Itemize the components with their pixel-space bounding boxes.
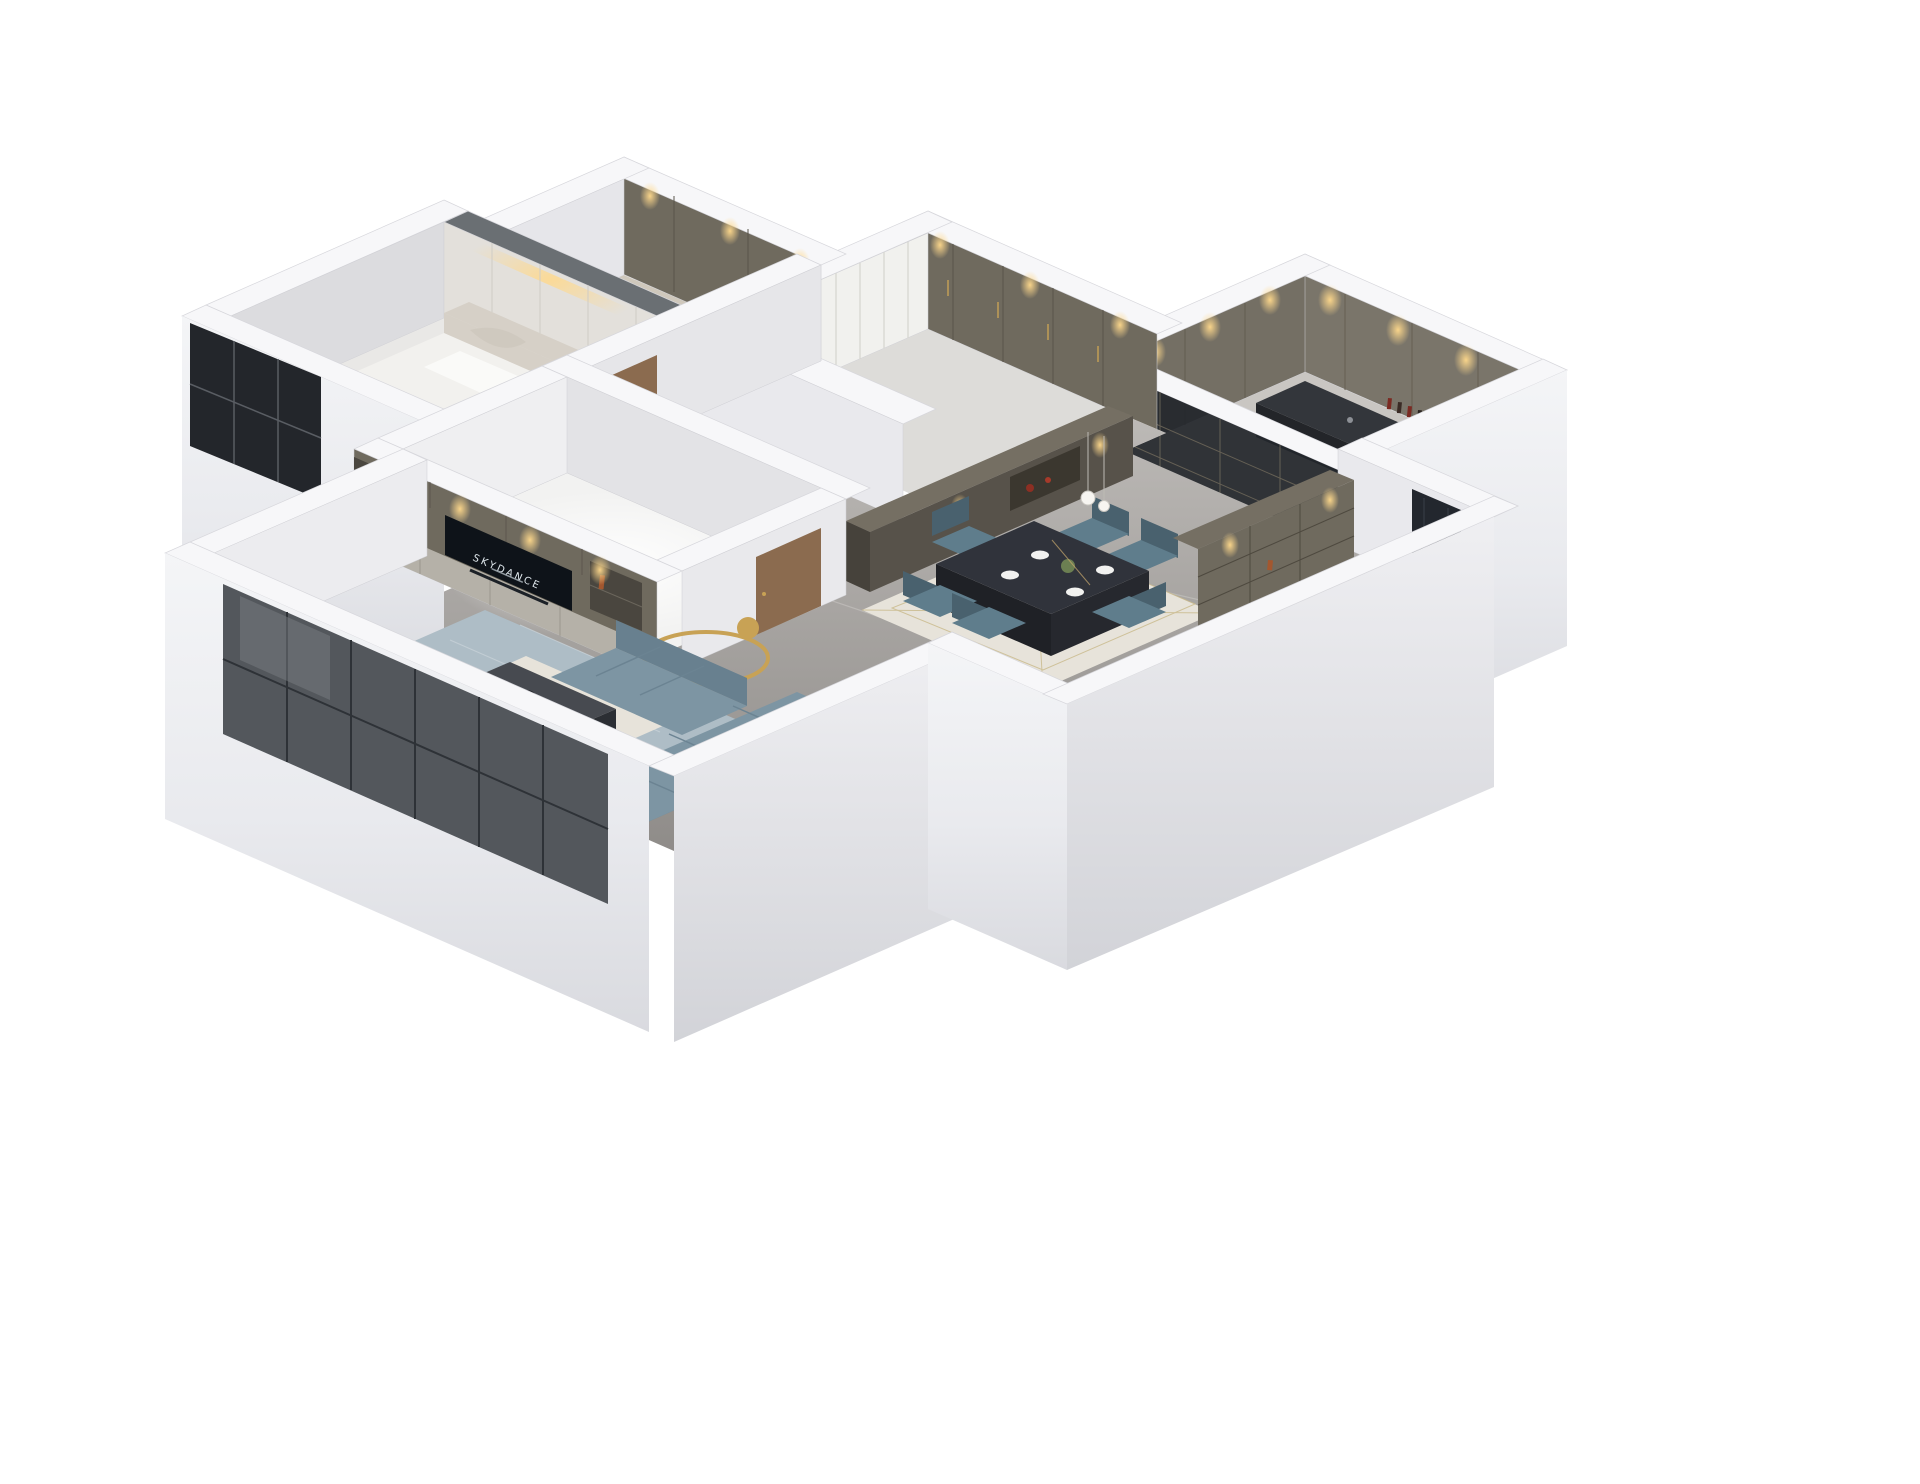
red-vase	[1026, 484, 1034, 492]
downlight-glow	[1454, 344, 1478, 376]
downlight-glow	[1318, 284, 1342, 316]
downlight-glow	[1386, 314, 1410, 346]
downlight-glow	[720, 217, 740, 245]
centerpiece-plant	[1061, 559, 1075, 573]
downlight-glow	[1321, 487, 1339, 513]
floorplan-render: SKYDANCE	[0, 0, 1920, 1484]
door-handle	[762, 592, 766, 596]
plate	[1031, 551, 1049, 560]
downlight-glow	[1259, 285, 1281, 315]
red-vase	[1045, 477, 1051, 483]
downlight-glow	[589, 555, 611, 585]
downlight-glow	[1091, 432, 1109, 458]
downlight-glow	[1020, 271, 1040, 299]
downlight-glow	[640, 182, 660, 210]
plate	[1001, 571, 1019, 580]
gold-stool	[737, 617, 759, 639]
downlight-glow	[1221, 532, 1239, 558]
plate	[1096, 566, 1114, 575]
downlight-glow	[1110, 311, 1130, 339]
plate	[1066, 588, 1084, 597]
downlight-glow	[1199, 312, 1221, 342]
downlight-glow	[930, 231, 950, 259]
floorplan-canvas: SKYDANCE	[0, 0, 1920, 1484]
